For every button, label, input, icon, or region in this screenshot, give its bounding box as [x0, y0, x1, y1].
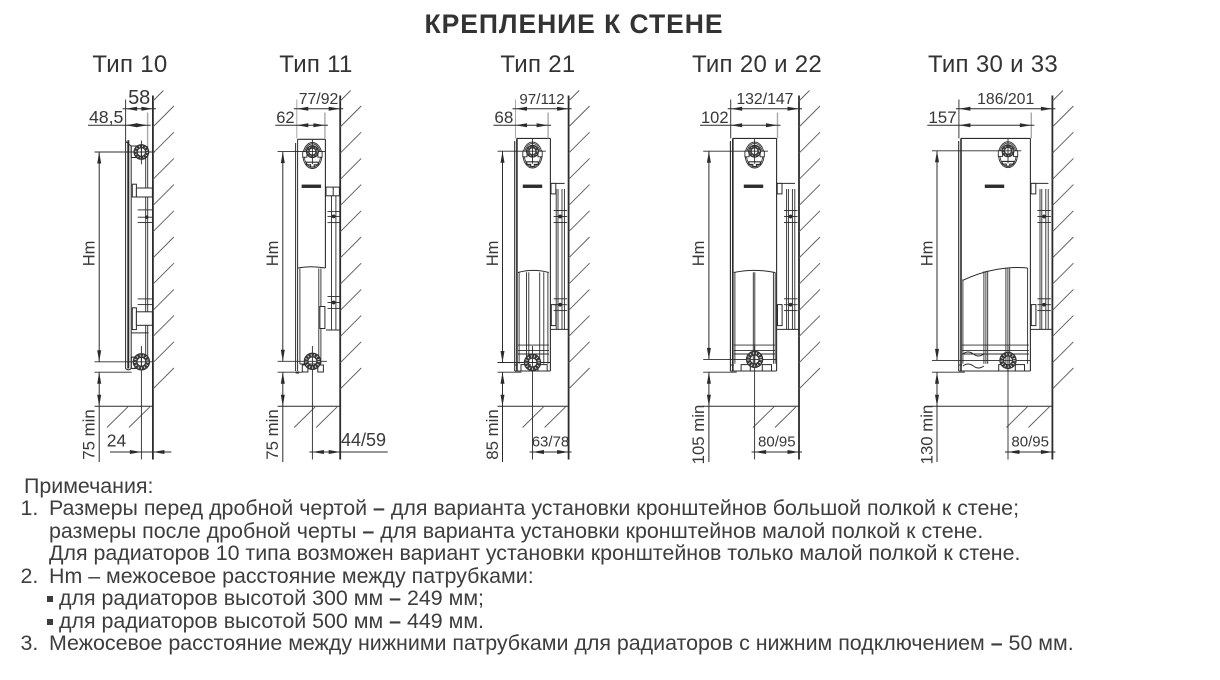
svg-text:Hm: Hm — [264, 241, 282, 267]
svg-text:44/59: 44/59 — [341, 430, 386, 450]
svg-text:80/95: 80/95 — [758, 434, 796, 451]
svg-text:Тип 21: Тип 21 — [500, 51, 575, 78]
svg-text:Тип 20 и 22: Тип 20 и 22 — [692, 51, 822, 78]
svg-text:85 min: 85 min — [483, 409, 502, 459]
svg-text:Hm: Hm — [690, 241, 708, 267]
svg-text:97/112: 97/112 — [519, 91, 564, 108]
svg-text:77/92: 77/92 — [299, 91, 339, 108]
svg-text:132/147: 132/147 — [736, 91, 793, 108]
svg-text:130 min: 130 min — [917, 405, 936, 465]
svg-text:63/78: 63/78 — [532, 434, 570, 451]
svg-text:105 min: 105 min — [689, 405, 708, 465]
svg-text:КРЕПЛЕНИЕ К СТЕНЕ: КРЕПЛЕНИЕ К СТЕНЕ — [425, 9, 724, 39]
svg-text:80/95: 80/95 — [1011, 434, 1049, 451]
svg-text:62: 62 — [276, 109, 294, 127]
svg-text:24: 24 — [107, 431, 127, 451]
svg-text:58: 58 — [128, 87, 150, 109]
svg-text:157: 157 — [928, 108, 956, 127]
svg-text:Тип 11: Тип 11 — [279, 51, 352, 78]
svg-text:48,5: 48,5 — [89, 107, 124, 127]
svg-text:75 min: 75 min — [80, 409, 99, 459]
svg-text:186/201: 186/201 — [977, 91, 1034, 108]
svg-text:Hm: Hm — [81, 241, 99, 267]
svg-text:Hm: Hm — [484, 241, 502, 267]
svg-text:75 min: 75 min — [263, 409, 282, 459]
svg-text:Тип 30 и 33: Тип 30 и 33 — [928, 51, 1058, 78]
svg-text:68: 68 — [494, 108, 513, 127]
svg-text:Hm: Hm — [918, 241, 936, 267]
svg-text:102: 102 — [701, 109, 729, 127]
svg-text:Тип 10: Тип 10 — [92, 51, 167, 78]
